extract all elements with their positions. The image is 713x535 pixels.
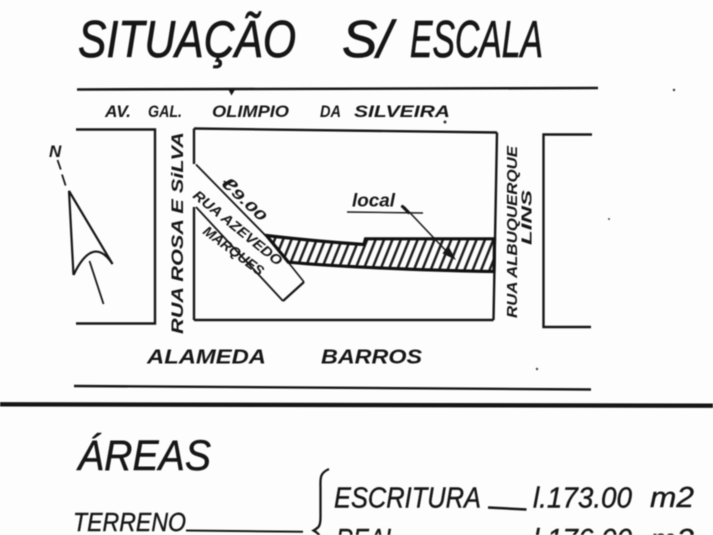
svg-text:OLIMPIO: OLIMPIO — [212, 102, 289, 121]
svg-text:GAL.: GAL. — [148, 102, 182, 121]
svg-text:BARROS: BARROS — [321, 347, 423, 369]
svg-text:DA: DA — [320, 102, 341, 121]
svg-text:REAL: REAL — [336, 524, 398, 535]
svg-text:SITUAÇÃO: SITUAÇÃO — [78, 11, 296, 69]
svg-text:l.173.00: l.173.00 — [533, 483, 632, 515]
svg-text:S/: S/ — [342, 11, 397, 69]
svg-text:ÁREAS: ÁREAS — [76, 432, 211, 480]
svg-text:ESCALA: ESCALA — [410, 11, 543, 69]
svg-text:l.176.00: l.176.00 — [533, 524, 632, 535]
svg-text:N: N — [49, 142, 62, 161]
svg-text:RUA ROSA E SiLVA: RUA ROSA E SiLVA — [168, 132, 187, 334]
svg-text:TERRENO: TERRENO — [73, 507, 186, 535]
svg-text:m2: m2 — [650, 524, 694, 535]
svg-text:SILVEIRA: SILVEIRA — [354, 102, 450, 121]
svg-text:ALAMEDA: ALAMEDA — [146, 347, 266, 369]
svg-text:m2: m2 — [650, 482, 694, 514]
svg-text:AV.: AV. — [104, 102, 131, 121]
svg-text:LINS: LINS — [519, 190, 536, 245]
svg-text:ESCRITURA: ESCRITURA — [334, 483, 481, 515]
svg-text:local: local — [352, 191, 396, 211]
